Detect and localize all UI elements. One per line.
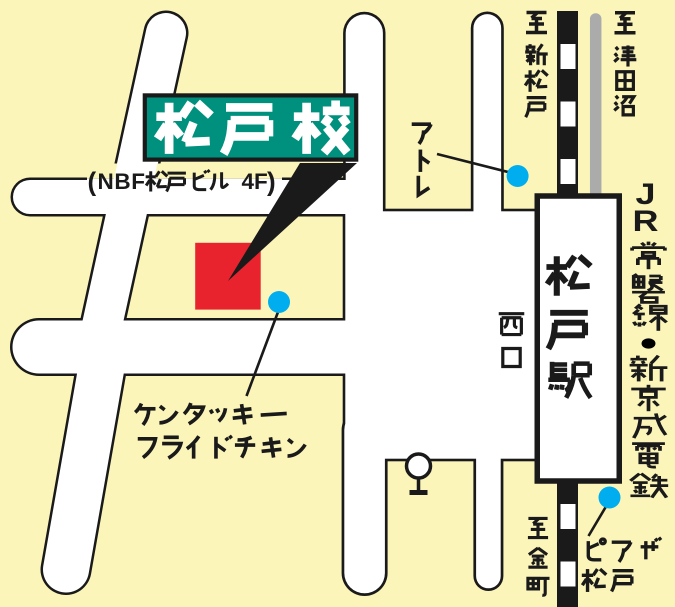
svg-text:): )	[267, 167, 276, 197]
svg-text:R: R	[633, 205, 659, 238]
svg-text:4F: 4F	[242, 169, 268, 194]
svg-text:(: (	[88, 167, 97, 197]
svg-text:NBF: NBF	[98, 169, 146, 194]
